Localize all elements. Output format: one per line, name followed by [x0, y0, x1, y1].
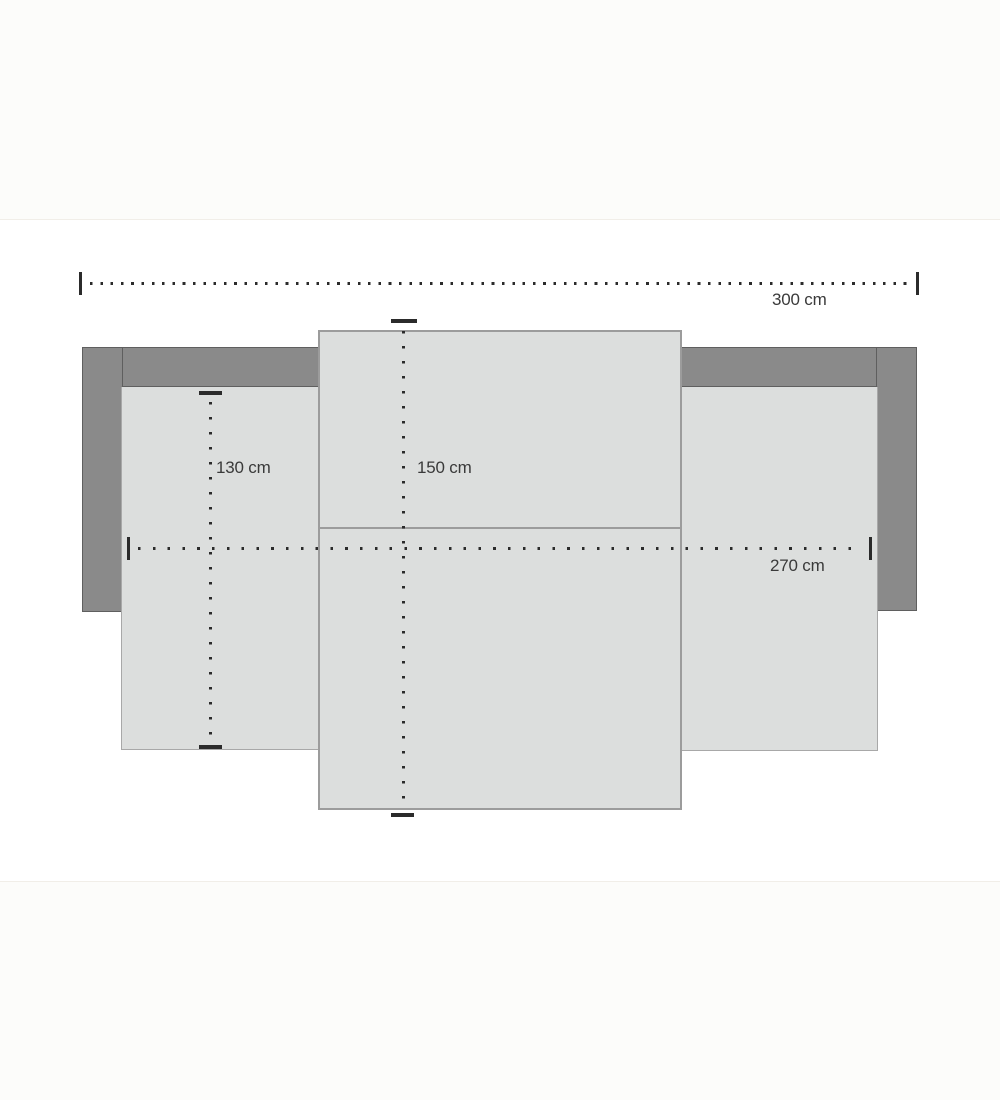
- dimension-tick-pullout-depth-top: [391, 319, 417, 323]
- pullout-seam-line: [320, 527, 680, 529]
- dimension-tick-total-width-right: [916, 272, 919, 295]
- dimension-label-seat-depth: 130 cm: [216, 459, 271, 476]
- dimension-drawing: 300 cm 270 cm 130 cm 150 cm: [0, 0, 1000, 1100]
- dimension-tick-pullout-depth-bottom: [391, 813, 414, 817]
- dimension-tick-seat-depth-bottom: [199, 745, 222, 749]
- dimension-line-pullout-depth: [402, 331, 405, 809]
- dimension-line-seat-depth: [209, 402, 212, 740]
- dimension-tick-inner-width-left: [127, 537, 130, 560]
- dimension-tick-total-width-left: [79, 272, 82, 295]
- dimension-label-pullout-depth: 150 cm: [417, 459, 472, 476]
- dimension-line-inner-width: [138, 547, 862, 550]
- sofa-armrest-right: [876, 347, 917, 611]
- dimension-label-inner-width: 270 cm: [770, 557, 825, 574]
- seat-panel-left: [121, 386, 319, 750]
- dimension-label-total-width: 300 cm: [772, 291, 827, 308]
- dimension-tick-seat-depth-top: [199, 391, 222, 395]
- dimension-tick-inner-width-right: [869, 537, 872, 560]
- pullout-bed-panel: [318, 330, 682, 810]
- sofa-armrest-left: [82, 347, 123, 612]
- dimension-line-total-width: [90, 282, 910, 285]
